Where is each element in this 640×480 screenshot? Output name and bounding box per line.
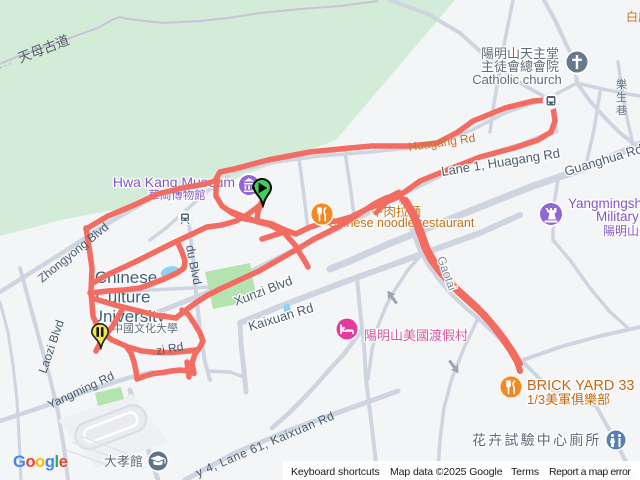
svg-text:大孝館: 大孝館 <box>104 454 143 469</box>
svg-text:樂生巷: 樂生巷 <box>616 77 627 117</box>
svg-text:1/3美軍俱樂部: 1/3美軍俱樂部 <box>527 392 610 407</box>
svg-text:花卉試驗中心廁所: 花卉試驗中心廁所 <box>472 432 602 448</box>
svg-text:陽明山美: 陽明山美 <box>603 224 640 238</box>
svg-text:Catholic church: Catholic church <box>472 72 562 87</box>
svg-text:中國文化大學: 中國文化大學 <box>112 321 178 335</box>
svg-text:Military: Military <box>596 209 639 224</box>
svg-text:陽明山美國渡假村: 陽明山美國渡假村 <box>364 328 468 343</box>
svg-text:陽明山天主堂主徒會總會院: 陽明山天主堂主徒會總會院 <box>481 46 559 74</box>
svg-text:白房: 白房 <box>626 9 640 24</box>
